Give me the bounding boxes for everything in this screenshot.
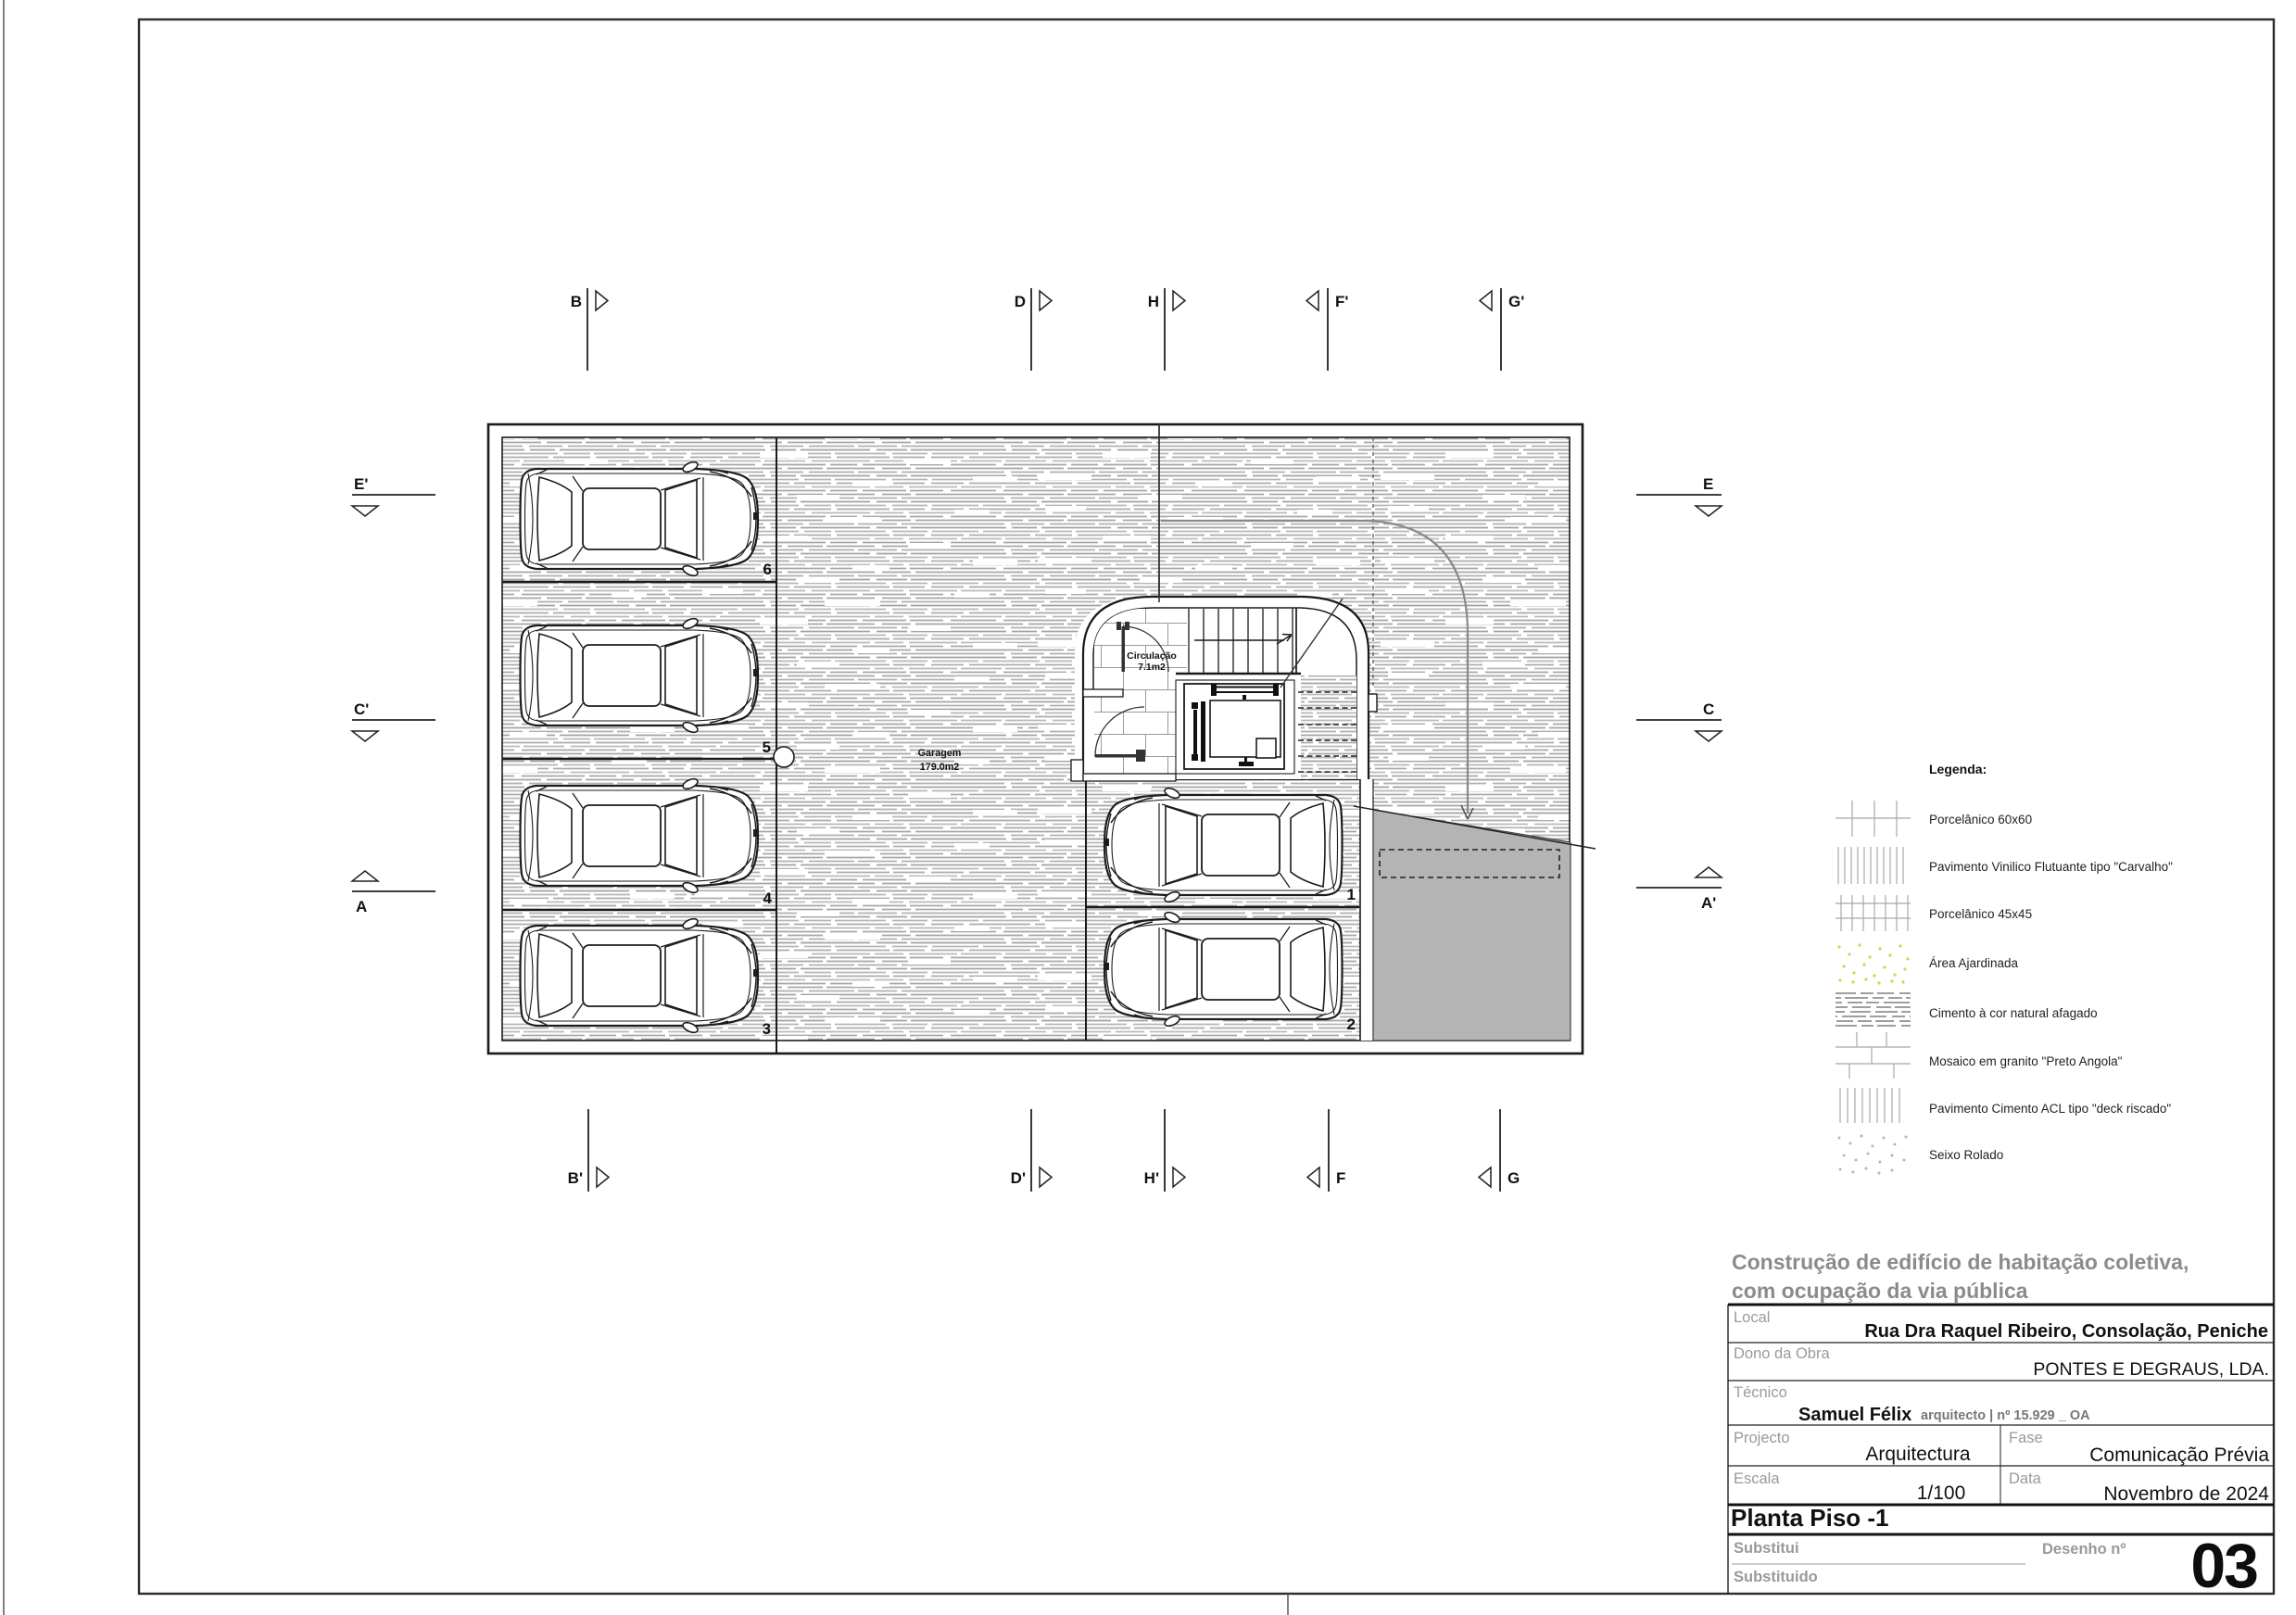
svg-text:PONTES E DEGRAUS, LDA.: PONTES E DEGRAUS, LDA. [2033, 1359, 2269, 1380]
svg-text:Legenda:: Legenda: [1929, 762, 1987, 776]
svg-text:1/100: 1/100 [1917, 1483, 1966, 1504]
svg-text:D': D' [1011, 1169, 1026, 1187]
svg-text:Construção de edifício de habi: Construção de edifício de habitação cole… [1732, 1250, 2189, 1274]
svg-text:Garagem: Garagem [918, 748, 962, 759]
svg-text:E: E [1703, 475, 1713, 493]
svg-text:Pavimento Cimento ACL tipo "de: Pavimento Cimento ACL tipo "deck riscado… [1929, 1102, 2171, 1116]
svg-text:Projecto: Projecto [1734, 1430, 1790, 1446]
svg-text:Comunicação Prévia: Comunicação Prévia [2089, 1445, 2269, 1466]
svg-text:G': G' [1508, 293, 1524, 310]
svg-text:Fase: Fase [2009, 1430, 2043, 1446]
svg-text:C': C' [354, 700, 369, 718]
svg-text:5: 5 [763, 738, 771, 756]
svg-text:2: 2 [1347, 1016, 1356, 1033]
svg-text:G: G [1508, 1169, 1520, 1187]
svg-text:H: H [1148, 293, 1159, 310]
svg-text:Local: Local [1734, 1309, 1770, 1326]
svg-text:Seixo Rolado: Seixo Rolado [1929, 1148, 2003, 1162]
svg-text:7.1m2: 7.1m2 [1138, 662, 1166, 673]
svg-text:Rua Dra Raquel Ribeiro, Consol: Rua Dra Raquel Ribeiro, Consolação, Peni… [1864, 1321, 2268, 1342]
svg-text:Substitui: Substitui [1734, 1540, 1799, 1557]
svg-text:4: 4 [763, 890, 773, 907]
svg-text:3: 3 [763, 1020, 771, 1038]
svg-text:H': H' [1144, 1169, 1159, 1187]
svg-text:Planta Piso -1: Planta Piso -1 [1731, 1504, 1889, 1532]
svg-text:03: 03 [2190, 1531, 2257, 1601]
svg-text:F: F [1336, 1169, 1345, 1187]
svg-text:Dono da Obra: Dono da Obra [1734, 1345, 1830, 1362]
svg-text:C: C [1703, 700, 1714, 718]
svg-text:com ocupação da via pública: com ocupação da via pública [1732, 1279, 2028, 1303]
svg-text:Porcelânico 60x60: Porcelânico 60x60 [1929, 813, 2032, 826]
svg-text:Samuel Félix: Samuel Félix [1798, 1405, 1911, 1425]
svg-text:Circulação: Circulação [1127, 650, 1177, 662]
svg-text:E': E' [354, 475, 368, 493]
svg-text:Mosaico em granito "Preto Ango: Mosaico em granito "Preto Angola" [1929, 1054, 2123, 1068]
svg-text:A: A [356, 898, 367, 915]
svg-text:Data: Data [2009, 1470, 2042, 1487]
svg-text:6: 6 [763, 561, 772, 578]
svg-text:Área Ajardinada: Área Ajardinada [1929, 956, 2019, 970]
svg-text:B': B' [568, 1169, 583, 1187]
svg-text:Técnico: Técnico [1734, 1384, 1787, 1401]
svg-text:Arquitectura: Arquitectura [1865, 1444, 1971, 1465]
svg-text:B: B [571, 293, 582, 310]
svg-text:F': F' [1335, 293, 1348, 310]
svg-text:Substituido: Substituido [1734, 1569, 1818, 1585]
svg-text:Desenho nº: Desenho nº [2042, 1541, 2126, 1558]
svg-text:Porcelânico 45x45: Porcelânico 45x45 [1929, 907, 2032, 921]
svg-text:Novembro de 2024: Novembro de 2024 [2103, 1483, 2269, 1505]
svg-text:1: 1 [1347, 886, 1356, 903]
svg-text:Pavimento Vinilico Flutuante t: Pavimento Vinilico Flutuante tipo "Carva… [1929, 860, 2173, 874]
svg-text:A': A' [1701, 894, 1716, 912]
svg-text:Escala: Escala [1734, 1470, 1780, 1487]
svg-text:arquitecto | nº 15.929 _ OA: arquitecto | nº 15.929 _ OA [1921, 1408, 2090, 1423]
svg-text:D: D [1015, 293, 1026, 310]
svg-text:Cimento à cor natural afagado: Cimento à cor natural afagado [1929, 1006, 2098, 1020]
svg-text:179.0m2: 179.0m2 [920, 762, 960, 773]
